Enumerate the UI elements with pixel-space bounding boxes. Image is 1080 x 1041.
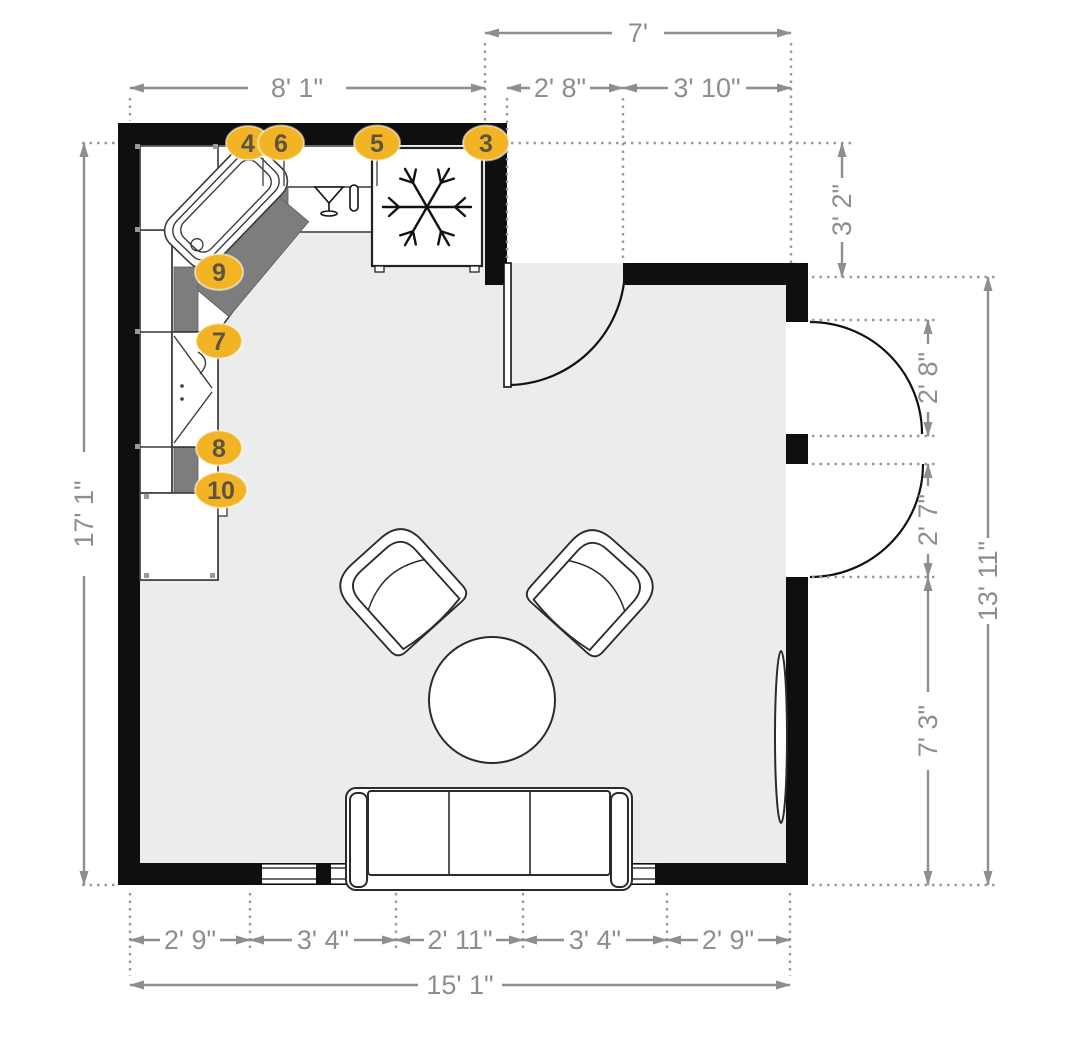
marker-7-label: 7 — [212, 328, 226, 356]
right-door-lower[interactable] — [810, 464, 923, 577]
right-door-upper[interactable] — [810, 322, 922, 434]
marker-9[interactable]: 9 — [195, 254, 243, 290]
dim-right-door-upper: 2' 8" — [913, 352, 943, 404]
marker-6-label: 6 — [274, 130, 288, 158]
wall-left — [118, 123, 140, 885]
round-table[interactable] — [429, 637, 555, 763]
marker-4-label: 4 — [241, 130, 255, 158]
wall-right-upper — [786, 263, 808, 322]
dim-recess-side: 3' 10" — [673, 73, 740, 103]
marker-6[interactable]: 6 — [258, 126, 304, 161]
counter-filler-left-lower — [174, 447, 198, 493]
wall-tv[interactable] — [775, 651, 787, 823]
marker-5[interactable]: 5 — [354, 126, 400, 161]
dim-entry-door: 2' 8" — [534, 73, 586, 103]
dim-recess-width-total: 7' — [628, 18, 648, 48]
wall-recess-bottom — [623, 263, 808, 285]
wall-cabinets-left[interactable] — [140, 230, 172, 493]
dim-bottom-seg2: 3' 4" — [297, 925, 349, 955]
sofa[interactable] — [346, 788, 632, 890]
marker-9-label: 9 — [212, 259, 226, 287]
marker-8[interactable]: 8 — [196, 431, 242, 466]
marker-10[interactable]: 10 — [195, 472, 247, 508]
wall-right-stub — [786, 434, 808, 464]
dim-bottom-seg4: 3' 4" — [569, 925, 621, 955]
marker-3-label: 3 — [479, 130, 493, 158]
floor-plan-canvas: 7' 8' 1" 2' 8" 3' 10" 3' 2" 2' 8" 2' 7" … — [0, 0, 1080, 1041]
wall-top — [118, 123, 507, 145]
marker-8-label: 8 — [212, 435, 226, 463]
dim-bottom-total: 15' 1" — [426, 970, 493, 1000]
dim-right-lower: 7' 3" — [913, 705, 943, 757]
dim-top-kitchen-wall: 8' 1" — [271, 73, 323, 103]
dim-bottom-seg1: 2' 9" — [164, 925, 216, 955]
dim-left-total: 17' 1" — [69, 480, 99, 547]
dim-right-total: 13' 11" — [973, 541, 1003, 621]
marker-7[interactable]: 7 — [196, 324, 242, 359]
marker-5-label: 5 — [370, 130, 384, 158]
dim-right-door-lower: 2' 7" — [913, 494, 943, 546]
dim-bottom-seg3: 2' 11" — [427, 925, 492, 955]
counter-filler-left-upper — [174, 267, 198, 332]
dim-bottom-seg5: 2' 9" — [702, 925, 754, 955]
marker-3[interactable]: 3 — [463, 126, 509, 161]
wall-right-lower — [786, 577, 808, 885]
fridge[interactable] — [372, 148, 482, 272]
dim-recess-depth: 3' 2" — [827, 184, 857, 236]
marker-10-label: 10 — [207, 477, 235, 505]
